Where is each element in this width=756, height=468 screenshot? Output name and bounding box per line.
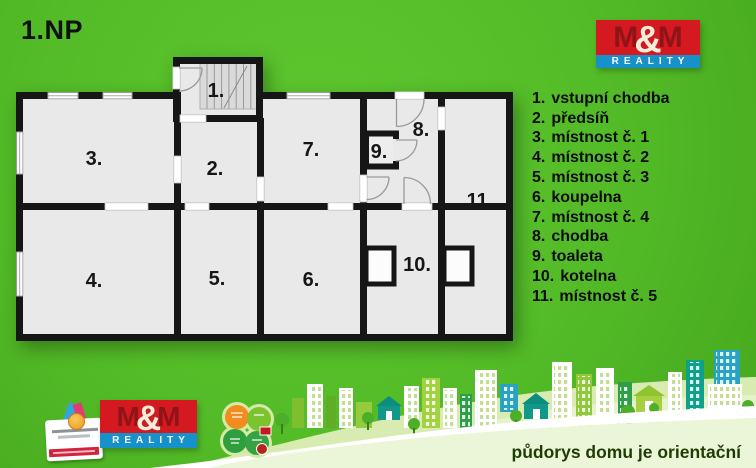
room-number-labels: 1. 2. 3. 4. 5. 6. 7. 8. 9. 10. 11. [86, 80, 494, 292]
legend-label: místnost č. 2 [551, 149, 649, 167]
legend-item-8: 8.chodba [532, 228, 670, 248]
disclaimer-text: půdorys domu je orientační [512, 442, 741, 463]
legend-num: 9. [532, 248, 545, 266]
legend-label: místnost č. 3 [551, 169, 649, 187]
legend-item-7: 7.místnost č. 4 [532, 208, 670, 228]
legend-label: místnost č. 4 [551, 209, 649, 227]
legend-num: 1. [532, 90, 545, 108]
floorplan-walls [16, 57, 513, 341]
legend-label: chodba [551, 228, 608, 246]
room-label-5: 5. [209, 268, 226, 290]
room-label-11: 11. [467, 190, 494, 212]
flyer-background: 1.NP M & M REALITY [0, 0, 756, 468]
legend-num: 7. [532, 209, 545, 227]
award-badge-logo [44, 402, 108, 462]
legend-label: toaleta [551, 248, 603, 266]
legend-num: 3. [532, 129, 545, 147]
mm-logo-ampersand: & [136, 401, 161, 436]
house-teal-2 [522, 393, 550, 419]
door-openings [105, 67, 445, 210]
trees [275, 400, 754, 442]
buildings [292, 350, 742, 428]
legend-num: 2. [532, 110, 545, 128]
legend-item-4: 4.místnost č. 2 [532, 148, 670, 168]
mm-logo-mark: M & M [100, 400, 197, 433]
toilet-room-box [361, 131, 400, 170]
legend-label: kotelna [560, 268, 616, 286]
room-label-4: 4. [86, 270, 103, 292]
clover-logo [218, 400, 276, 460]
legend-item-6: 6.koupelna [532, 188, 670, 208]
room-label-1: 1. [208, 80, 225, 102]
legend-num: 5. [532, 169, 545, 187]
legend-item-5: 5.místnost č. 3 [532, 168, 670, 188]
mm-logo-mark: M & M [596, 20, 700, 55]
room-label-3: 3. [86, 148, 103, 170]
legend-num: 11. [532, 288, 553, 306]
window-symbols [17, 93, 330, 296]
mm-reality-logo-bottom: M & M REALITY [100, 400, 197, 448]
legend-item-2: 2.předsíň [532, 109, 670, 129]
room-label-7: 7. [303, 139, 320, 161]
floor-title: 1.NP [21, 15, 83, 46]
staircase-symbol [200, 63, 257, 109]
clover-mini-logo [260, 427, 271, 435]
legend-label: předsíň [551, 110, 609, 128]
legend-item-9: 9.toaleta [532, 247, 670, 267]
legend-num: 4. [532, 149, 545, 167]
legend-item-10: 10.kotelna [532, 267, 670, 287]
legend-item-11: 11.místnost č. 5 [532, 287, 670, 307]
legend-item-3: 3.místnost č. 1 [532, 129, 670, 149]
mm-reality-logo-top: M & M REALITY [596, 20, 700, 68]
room-label-2: 2. [207, 158, 224, 180]
legend-label: koupelna [551, 189, 621, 207]
legend-label: místnost č. 5 [559, 288, 657, 306]
legend-num: 8. [532, 228, 545, 246]
legend-label: místnost č. 1 [551, 129, 649, 147]
room-label-10: 10. [403, 254, 431, 276]
legend-item-1: 1.vstupní chodba [532, 89, 670, 109]
house-lime [633, 385, 665, 412]
boiler-symbols [366, 248, 472, 284]
room-label-9: 9. [371, 141, 388, 163]
door-swing-arcs [179, 68, 431, 204]
room-legend: 1.vstupní chodba 2.předsíň 3.místnost č.… [532, 89, 670, 307]
floorplan-room-fills [16, 57, 513, 341]
legend-label: vstupní chodba [551, 90, 669, 108]
house-teal-1 [376, 396, 402, 420]
legend-num: 6. [532, 189, 545, 207]
room-label-6: 6. [303, 269, 320, 291]
legend-num: 10. [532, 268, 554, 286]
clover-emblem [257, 444, 268, 455]
mm-logo-ampersand: & [634, 21, 661, 59]
award-medal-icon [68, 413, 85, 430]
room-label-8: 8. [413, 119, 430, 141]
